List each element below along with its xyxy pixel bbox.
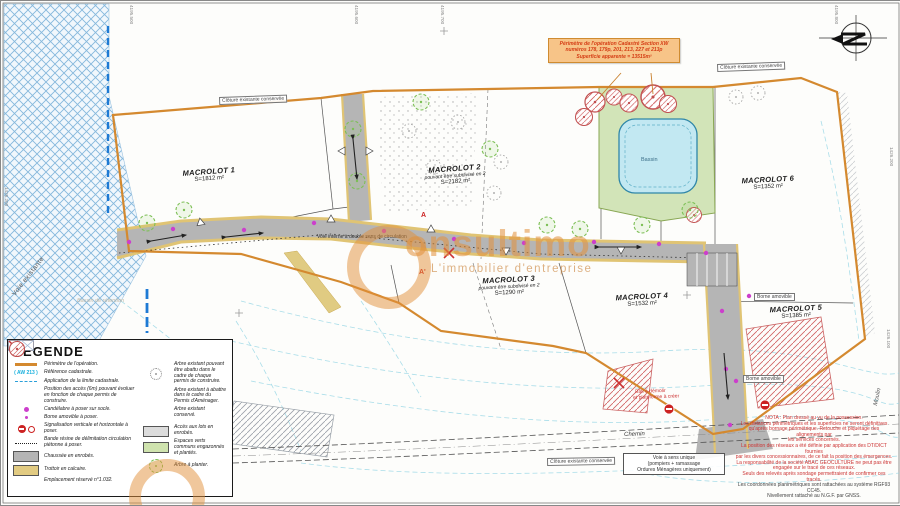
no-entry-sign-icon bbox=[18, 425, 26, 433]
north-arrow bbox=[819, 15, 887, 61]
section-marker-a-prime: A' bbox=[419, 269, 426, 276]
site-plan-sheet: Voie existante Bassin de rétention Voie … bbox=[0, 0, 900, 506]
perimeter-note-line2: numéros 178, 179p, 201, 213, 227 et 213p bbox=[550, 47, 678, 53]
perimeter-note-line3: Superficie apparente = 13515m² bbox=[550, 54, 678, 60]
parking-area bbox=[687, 253, 737, 286]
grid-coord-top-3: 4195.700 bbox=[440, 5, 445, 24]
legend-item-lot-access: Accès aux lots en enrobés. bbox=[142, 425, 226, 437]
green-space-swatch bbox=[143, 442, 169, 453]
legend-item-cadastral-limit: Application de la limite cadastrale. bbox=[12, 379, 138, 385]
bollard-icon bbox=[25, 416, 28, 419]
nota-block: NOTA : Plan dressé au vu de la possessio… bbox=[735, 416, 893, 500]
legend-item-lamp: Candélabre à poser sur socle. bbox=[12, 407, 138, 413]
fence-label-bottom: Clôture existante conservée bbox=[547, 457, 615, 466]
trees-to-fell bbox=[444, 248, 624, 388]
borne-amovible-label-1: Borne amovible bbox=[754, 293, 795, 301]
grid-coord-left-1: 1426.200 bbox=[4, 187, 9, 206]
round-sign-icon bbox=[28, 426, 35, 433]
legend-item-tree-removable: Arbre existant pouvant être abattu dans … bbox=[142, 362, 226, 385]
voie-interne-label: Voie interne à double sens de circulatio… bbox=[317, 234, 407, 240]
pond-label: Bassin bbox=[641, 157, 658, 163]
legend-item-green-space: Espaces verts communs engazonnés et plan… bbox=[142, 439, 226, 456]
legend-item-tree-fell: Arbre existant à abattre dans le cadre d… bbox=[142, 388, 226, 405]
existing-road-hatched-area bbox=[4, 4, 146, 346]
roadway-swatch bbox=[13, 451, 39, 462]
one-way-road-note: Voie à sens unique (pompiers + ramassage… bbox=[623, 453, 725, 475]
legend-item-access: Position des accès (6m) pouvant évoluer … bbox=[12, 387, 138, 404]
cadastral-ref-icon: ( AW 213 ) bbox=[14, 370, 38, 376]
legend-item-sidewalk: Trottoir en calcaire. bbox=[12, 465, 138, 476]
resin-band-icon bbox=[15, 443, 37, 444]
bassin-retention-label: Bassin de rétention bbox=[77, 298, 124, 304]
grid-coord-right-2: 1426.100 bbox=[886, 329, 891, 348]
legend-item-cadastral-ref: ( AW 213 ) Référence cadastrale. bbox=[12, 370, 138, 376]
legend-item-tree-plant: Arbre à planter. bbox=[142, 459, 226, 473]
legend-title: LEGENDE bbox=[14, 344, 228, 359]
legend-item-tree-conserved: Arbre existant conservé. bbox=[142, 407, 226, 419]
tree-conserved-icon bbox=[8, 340, 26, 358]
legend-panel: LEGENDE Périmètre de l'opération. ( AW 2… bbox=[7, 339, 233, 497]
sidewalk-swatch bbox=[13, 465, 39, 476]
legend-item-perimeter: Périmètre de l'opération. bbox=[12, 362, 138, 368]
perimeter-line-icon bbox=[15, 363, 37, 366]
legend-item-reserved: Emplacement réservé n°1.032. bbox=[12, 478, 138, 484]
grid-coord-top-1: 4195.500 bbox=[129, 5, 134, 24]
street-lamp-icon bbox=[24, 407, 29, 412]
perimeter-note-box: Périmètre de l'opération Cadastré Sectio… bbox=[548, 38, 680, 63]
grid-coord-right-1: 1426.200 bbox=[889, 147, 894, 166]
tree-removable-icon bbox=[150, 368, 162, 380]
grid-coord-top-2: 4195.600 bbox=[354, 5, 359, 24]
ground-texture bbox=[377, 93, 479, 213]
chemin-label: Chemin bbox=[624, 431, 645, 438]
legend-item-roadway: Chaussée en enrobés. bbox=[12, 451, 138, 462]
grid-coord-top-4: 4195.800 bbox=[834, 5, 839, 24]
legend-item-signs: Signalisation verticale et horizontale à… bbox=[12, 423, 138, 435]
nota-line: Nivellement rattaché au N.G.F. par GNSS. bbox=[735, 494, 893, 500]
legend-item-bollard: Borne amovible à poser. bbox=[12, 415, 138, 421]
pond bbox=[619, 119, 697, 193]
cadastral-limit-icon bbox=[15, 381, 37, 382]
tree-plant-icon bbox=[149, 459, 163, 473]
section-marker-a: A bbox=[421, 212, 426, 219]
subdivision-lines bbox=[473, 89, 501, 349]
legend-item-resin-band: Bande résine de délimitation circulation… bbox=[12, 437, 138, 449]
lot-access-swatch bbox=[143, 426, 169, 437]
borne-amovible-label-2: Borne amovible bbox=[743, 375, 784, 383]
